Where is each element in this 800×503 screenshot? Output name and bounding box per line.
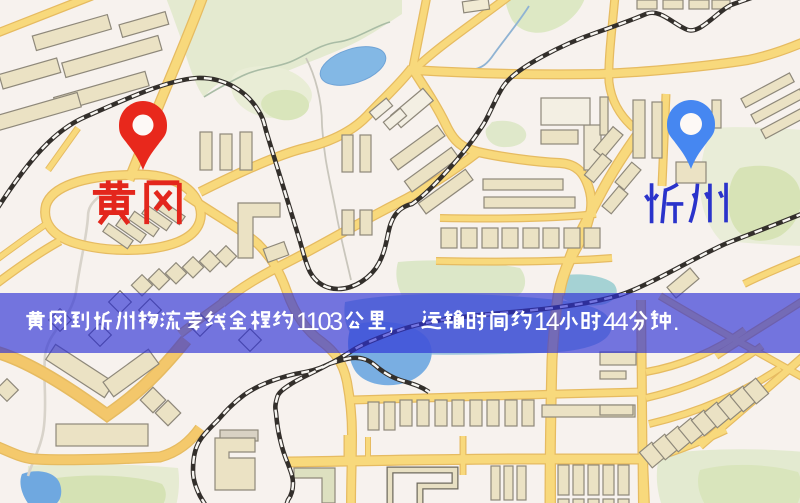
svg-text:,: , — [388, 309, 394, 335]
svg-text:.: . — [673, 309, 679, 335]
svg-text:44: 44 — [603, 308, 629, 336]
svg-text:1103: 1103 — [296, 308, 342, 336]
svg-text:14: 14 — [534, 308, 560, 336]
